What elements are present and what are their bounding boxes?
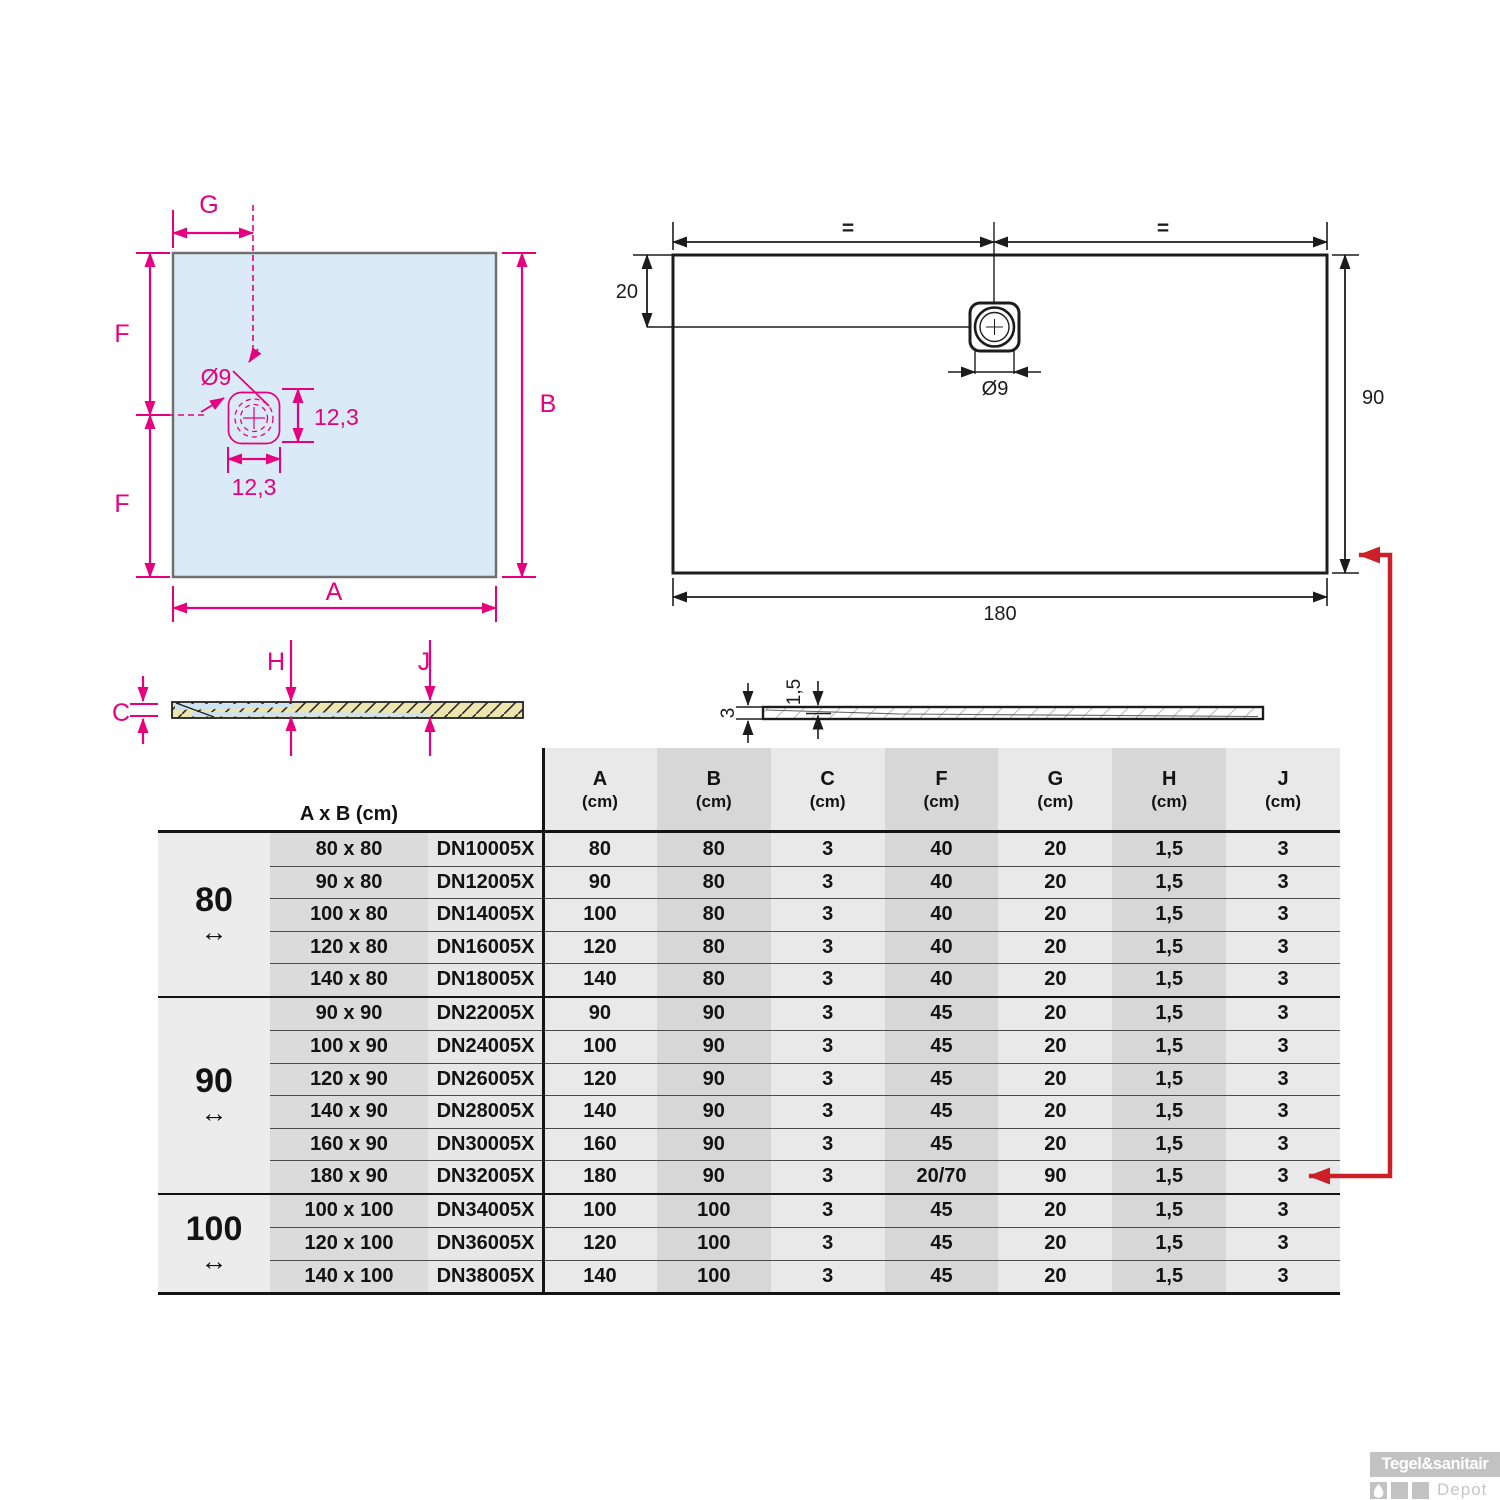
value-cell: 45 (885, 1096, 999, 1128)
value-cell: 100 (543, 1031, 657, 1063)
group-label: 90 (195, 1064, 233, 1098)
value-cell: 90 (543, 867, 657, 899)
group-rows: 100 x 100DN34005X100100345201,53120 x 10… (270, 1195, 1340, 1293)
size-cell: 80 x 80 (270, 833, 428, 866)
value-cell: 40 (885, 964, 999, 996)
table-heavy-divider (542, 748, 545, 1292)
value-cell: 80 (657, 899, 771, 931)
value-cell: 1,5 (1112, 899, 1226, 931)
spec-sheet: A x B (cm) A(cm)B(cm)C(cm)F(cm)G(cm)H(cm… (0, 0, 1500, 1500)
value-cell: 120 (543, 1228, 657, 1260)
table-corner-header: A x B (cm) (158, 748, 543, 830)
size-cell: 90 x 90 (270, 998, 428, 1031)
value-cell: 3 (1226, 899, 1340, 931)
value-cell: 3 (771, 964, 885, 996)
column-header-b: B(cm) (657, 748, 771, 830)
size-cell: 100 x 100 (270, 1195, 428, 1228)
table-row: 90 x 80DN12005X9080340201,53 (270, 866, 1340, 899)
value-cell: 20 (998, 964, 1112, 996)
product-code-cell: DN30005X (428, 1129, 543, 1161)
value-cell: 80 (657, 833, 771, 866)
value-cell: 3 (1226, 1261, 1340, 1293)
value-cell: 45 (885, 1129, 999, 1161)
product-code-cell: DN12005X (428, 867, 543, 899)
logo-square (1391, 1482, 1408, 1499)
group-cell-100: 100↔ (158, 1195, 270, 1293)
size-cell: 100 x 80 (270, 899, 428, 931)
value-cell: 3 (1226, 1096, 1340, 1128)
value-cell: 20 (998, 867, 1112, 899)
value-cell: 3 (1226, 932, 1340, 964)
value-cell: 3 (1226, 964, 1340, 996)
product-code-cell: DN18005X (428, 964, 543, 996)
value-cell: 1,5 (1112, 964, 1226, 996)
label-rect-height: 90 (1362, 387, 1384, 409)
product-code-cell: DN32005X (428, 1161, 543, 1193)
label-b: B (540, 390, 557, 418)
table-row: 100 x 80DN14005X10080340201,53 (270, 898, 1340, 931)
value-cell: 20 (998, 1261, 1112, 1293)
label-f-top: F (114, 320, 129, 348)
table-row: 140 x 80DN18005X14080340201,53 (270, 963, 1340, 996)
size-cell: 100 x 90 (270, 1031, 428, 1063)
group-cell-90: 90↔ (158, 998, 270, 1193)
table-row: 120 x 100DN36005X120100345201,53 (270, 1227, 1340, 1260)
section-view-bw: 1,5 3 (718, 679, 1263, 743)
value-cell: 3 (771, 1195, 885, 1228)
size-cell: 140 x 90 (270, 1096, 428, 1128)
value-cell: 1,5 (1112, 867, 1226, 899)
value-cell: 20 (998, 833, 1112, 866)
value-cell: 40 (885, 833, 999, 866)
value-cell: 20 (998, 1031, 1112, 1063)
value-cell: 3 (1226, 998, 1340, 1031)
value-cell: 40 (885, 899, 999, 931)
table-row: 120 x 90DN26005X12090345201,53 (270, 1063, 1340, 1096)
brand-watermark: Tegel&sanitair Depot (1370, 1452, 1500, 1500)
table-row: 180 x 90DN32005X18090320/70901,53 (270, 1160, 1340, 1193)
product-code-cell: DN14005X (428, 899, 543, 931)
size-cell: 90 x 80 (270, 867, 428, 899)
size-cell: 180 x 90 (270, 1161, 428, 1193)
size-cell: 140 x 100 (270, 1261, 428, 1293)
column-unit: (cm) (582, 793, 618, 810)
value-cell: 3 (771, 1064, 885, 1096)
droplet-icon (1370, 1482, 1387, 1499)
group-label: 80 (195, 883, 233, 917)
column-header-c: C(cm) (771, 748, 885, 830)
value-cell: 3 (771, 867, 885, 899)
square-tray-plan: G F F B A (114, 191, 556, 622)
column-header-j: J(cm) (1226, 748, 1340, 830)
product-code-cell: DN10005X (428, 833, 543, 866)
value-cell: 45 (885, 1064, 999, 1096)
label-drain-height: 12,3 (314, 404, 359, 430)
label-drain-diameter: Ø9 (201, 364, 232, 390)
brand-sub: Depot (1437, 1480, 1487, 1500)
value-cell: 120 (543, 932, 657, 964)
width-arrow-icon: ↔ (201, 1100, 228, 1127)
column-letter: F (935, 769, 947, 789)
value-cell: 90 (657, 1161, 771, 1193)
value-cell: 90 (657, 1096, 771, 1128)
product-code-cell: DN36005X (428, 1228, 543, 1260)
label-g: G (199, 191, 218, 219)
value-cell: 20 (998, 1064, 1112, 1096)
column-unit: (cm) (924, 793, 960, 810)
value-cell: 1,5 (1112, 1129, 1226, 1161)
group-section-90: 90↔90 x 90DN22005X9090345201,53100 x 90D… (158, 996, 1340, 1193)
value-cell: 140 (543, 964, 657, 996)
value-cell: 3 (771, 998, 885, 1031)
value-cell: 3 (1226, 1195, 1340, 1228)
group-section-80: 80↔80 x 80DN10005X8080340201,5390 x 80DN… (158, 830, 1340, 996)
column-header-f: F(cm) (885, 748, 999, 830)
column-letter: G (1048, 769, 1064, 789)
size-cell: 120 x 80 (270, 932, 428, 964)
value-cell: 180 (543, 1161, 657, 1193)
group-rows: 80 x 80DN10005X8080340201,5390 x 80DN120… (270, 833, 1340, 996)
tray-outline (173, 253, 496, 577)
label-eq-left: = (842, 217, 854, 240)
column-unit: (cm) (696, 793, 732, 810)
rect-tray-outline (673, 255, 1327, 573)
value-cell: 3 (771, 1096, 885, 1128)
column-header-h: H(cm) (1112, 748, 1226, 830)
value-cell: 1,5 (1112, 1096, 1226, 1128)
rect-tray-plan: = = 20 Ø9 90 (616, 217, 1385, 625)
value-cell: 45 (885, 1031, 999, 1063)
value-cell: 3 (1226, 1031, 1340, 1063)
value-cell: 3 (771, 1228, 885, 1260)
group-cell-80: 80↔ (158, 833, 270, 996)
value-cell: 100 (657, 1228, 771, 1260)
table-body: 80↔80 x 80DN10005X8080340201,5390 x 80DN… (158, 830, 1340, 1292)
value-cell: 80 (657, 964, 771, 996)
label-a: A (326, 578, 343, 606)
value-cell: 1,5 (1112, 1261, 1226, 1293)
table-row: 160 x 90DN30005X16090345201,53 (270, 1128, 1340, 1161)
value-cell: 45 (885, 1228, 999, 1260)
value-cell: 100 (657, 1195, 771, 1228)
value-cell: 1,5 (1112, 1064, 1226, 1096)
value-cell: 3 (771, 899, 885, 931)
value-cell: 80 (657, 932, 771, 964)
value-cell: 3 (1226, 1129, 1340, 1161)
value-cell: 1,5 (1112, 1228, 1226, 1260)
value-cell: 1,5 (1112, 1195, 1226, 1228)
value-cell: 3 (771, 1161, 885, 1193)
label-drain-width: 12,3 (232, 474, 277, 500)
value-cell: 140 (543, 1096, 657, 1128)
value-cell: 3 (1226, 1228, 1340, 1260)
column-letter: C (820, 769, 834, 789)
value-cell: 90 (657, 1031, 771, 1063)
label-j: J (418, 648, 431, 676)
value-cell: 100 (543, 899, 657, 931)
column-letter: J (1278, 769, 1289, 789)
value-cell: 1,5 (1112, 1031, 1226, 1063)
value-cell: 1,5 (1112, 932, 1226, 964)
value-cell: 20 (998, 899, 1112, 931)
value-cell: 120 (543, 1064, 657, 1096)
value-cell: 80 (543, 833, 657, 866)
square-tray-drain (229, 393, 280, 444)
label-f-bottom: F (114, 490, 129, 518)
product-code-cell: DN22005X (428, 998, 543, 1031)
label-rect-drain-diameter: Ø9 (982, 378, 1009, 400)
value-cell: 45 (885, 1195, 999, 1228)
value-cell: 20 (998, 1228, 1112, 1260)
value-cell: 20 (998, 1195, 1112, 1228)
value-cell: 90 (657, 998, 771, 1031)
group-rows: 90 x 90DN22005X9090345201,53100 x 90DN24… (270, 998, 1340, 1193)
value-cell: 20 (998, 932, 1112, 964)
column-header-a: A(cm) (543, 748, 657, 830)
value-cell: 3 (1226, 867, 1340, 899)
table-header-row: A x B (cm) A(cm)B(cm)C(cm)F(cm)G(cm)H(cm… (158, 748, 1340, 830)
label-rect-width: 180 (983, 603, 1016, 625)
value-cell: 100 (543, 1195, 657, 1228)
width-arrow-icon: ↔ (201, 1248, 228, 1275)
column-header-g: G(cm) (998, 748, 1112, 830)
value-cell: 80 (657, 867, 771, 899)
value-cell: 3 (771, 833, 885, 866)
label-h: H (267, 648, 285, 676)
value-cell: 1,5 (1112, 833, 1226, 866)
label-c: C (112, 699, 130, 727)
product-code-cell: DN26005X (428, 1064, 543, 1096)
column-unit: (cm) (1037, 793, 1073, 810)
value-cell: 3 (771, 1261, 885, 1293)
value-cell: 20 (998, 1129, 1112, 1161)
label-top-offset: 20 (616, 281, 638, 303)
value-cell: 45 (885, 998, 999, 1031)
value-cell: 20/70 (885, 1161, 999, 1193)
product-code-cell: DN34005X (428, 1195, 543, 1228)
product-code-cell: DN28005X (428, 1096, 543, 1128)
label-inner-depth: 1,5 (784, 679, 805, 705)
value-cell: 40 (885, 867, 999, 899)
spec-table: A x B (cm) A(cm)B(cm)C(cm)F(cm)G(cm)H(cm… (158, 748, 1340, 1295)
table-row: 80 x 80DN10005X8080340201,53 (270, 833, 1340, 866)
table-row: 100 x 90DN24005X10090345201,53 (270, 1030, 1340, 1063)
group-section-100: 100↔100 x 100DN34005X100100345201,53120 … (158, 1193, 1340, 1293)
value-cell: 90 (657, 1064, 771, 1096)
group-label: 100 (186, 1212, 243, 1246)
brand-name: Tegel&sanitair (1370, 1452, 1500, 1477)
size-cell: 120 x 90 (270, 1064, 428, 1096)
value-cell: 100 (657, 1261, 771, 1293)
width-arrow-icon: ↔ (201, 919, 228, 946)
value-cell: 20 (998, 1096, 1112, 1128)
table-row: 100 x 100DN34005X100100345201,53 (270, 1195, 1340, 1228)
value-cell: 90 (543, 998, 657, 1031)
value-cell: 90 (998, 1161, 1112, 1193)
column-unit: (cm) (1151, 793, 1187, 810)
value-cell: 1,5 (1112, 998, 1226, 1031)
value-cell: 3 (771, 932, 885, 964)
label-edge-thickness: 3 (718, 708, 739, 719)
column-letter: H (1162, 769, 1176, 789)
value-cell: 40 (885, 932, 999, 964)
column-letter: A (593, 769, 607, 789)
product-code-cell: DN38005X (428, 1261, 543, 1293)
value-cell: 3 (1226, 833, 1340, 866)
value-cell: 1,5 (1112, 1161, 1226, 1193)
logo-square (1412, 1482, 1429, 1499)
value-cell: 3 (1226, 1161, 1340, 1193)
table-row: 90 x 90DN22005X9090345201,53 (270, 998, 1340, 1031)
value-cell: 140 (543, 1261, 657, 1293)
label-eq-right: = (1157, 217, 1169, 240)
value-cell: 45 (885, 1261, 999, 1293)
value-cell: 3 (771, 1129, 885, 1161)
section-view-colored: C H J (112, 640, 523, 756)
table-row: 140 x 90DN28005X14090345201,53 (270, 1095, 1340, 1128)
value-cell: 3 (1226, 1064, 1340, 1096)
column-unit: (cm) (1265, 793, 1301, 810)
corner-header-label: A x B (cm) (270, 803, 428, 826)
value-cell: 90 (657, 1129, 771, 1161)
value-cell: 20 (998, 998, 1112, 1031)
product-code-cell: DN24005X (428, 1031, 543, 1063)
rect-tray-drain (970, 303, 1019, 351)
table-row: 120 x 80DN16005X12080340201,53 (270, 931, 1340, 964)
size-cell: 160 x 90 (270, 1129, 428, 1161)
size-cell: 120 x 100 (270, 1228, 428, 1260)
column-unit: (cm) (810, 793, 846, 810)
value-cell: 3 (771, 1031, 885, 1063)
value-cell: 160 (543, 1129, 657, 1161)
column-letter: B (707, 769, 721, 789)
product-code-cell: DN16005X (428, 932, 543, 964)
table-row: 140 x 100DN38005X140100345201,53 (270, 1260, 1340, 1293)
size-cell: 140 x 80 (270, 964, 428, 996)
